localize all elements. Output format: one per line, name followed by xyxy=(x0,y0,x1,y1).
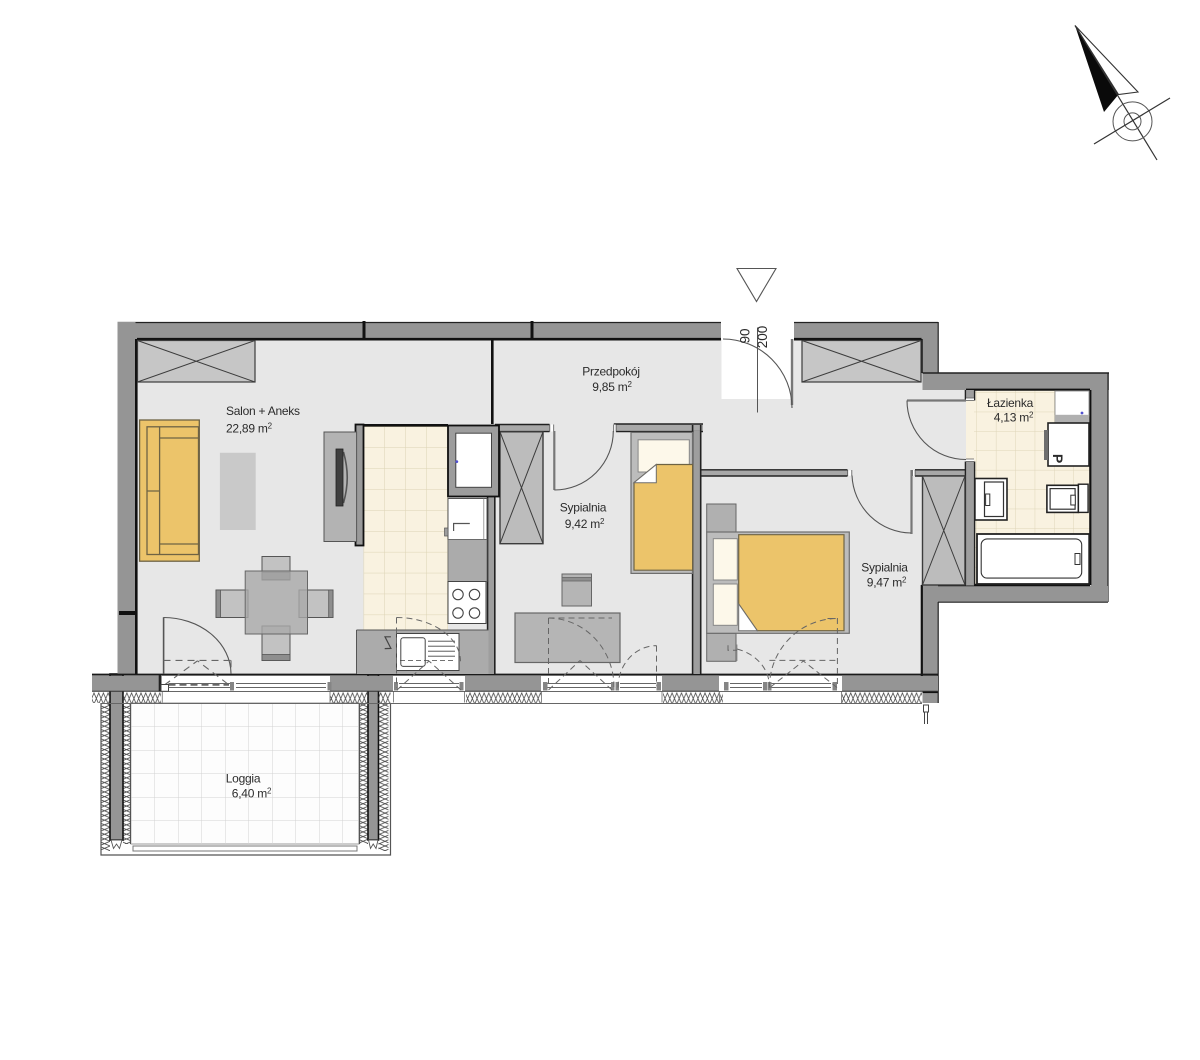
svg-text:Sypialnia: Sypialnia xyxy=(861,561,908,575)
svg-text:Salon + Aneks: Salon + Aneks xyxy=(226,404,300,418)
svg-text:9,42 m2: 9,42 m2 xyxy=(565,517,605,531)
svg-text:90: 90 xyxy=(738,328,753,343)
svg-text:9,85 m2: 9,85 m2 xyxy=(592,380,632,394)
svg-text:Przedpokój: Przedpokój xyxy=(582,365,640,379)
svg-text:4,13 m2: 4,13 m2 xyxy=(994,411,1034,425)
svg-text:6,40 m2: 6,40 m2 xyxy=(232,787,272,801)
svg-text:9,47 m2: 9,47 m2 xyxy=(867,576,907,590)
svg-text:P: P xyxy=(1050,454,1066,463)
svg-text:22,89 m2: 22,89 m2 xyxy=(226,422,273,436)
svg-text:Loggia: Loggia xyxy=(226,772,261,786)
svg-text:Sypialnia: Sypialnia xyxy=(560,501,607,515)
svg-text:200: 200 xyxy=(755,326,770,349)
svg-text:Łazienka: Łazienka xyxy=(987,396,1034,410)
